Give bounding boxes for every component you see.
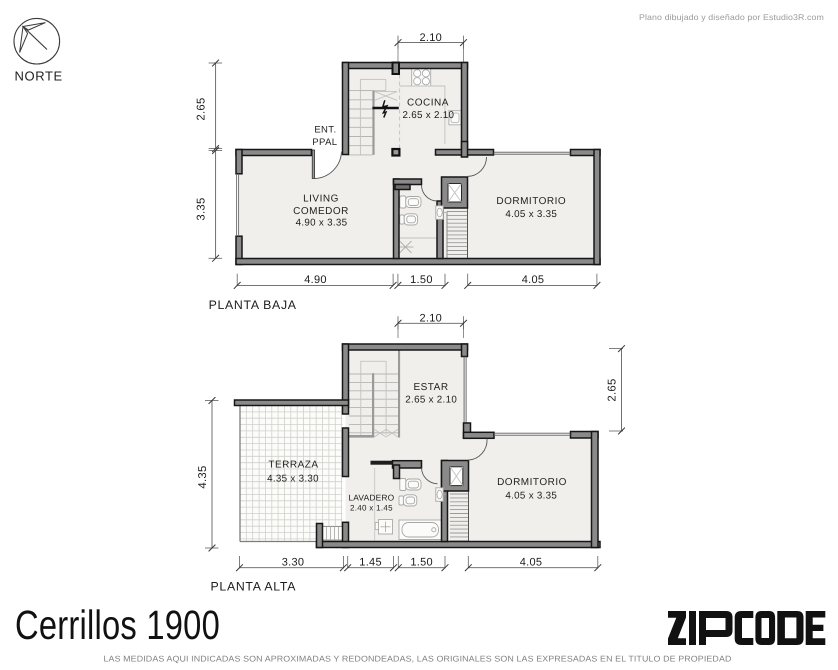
- svg-text:COCINA: COCINA: [407, 98, 449, 109]
- svg-text:3.35: 3.35: [196, 197, 208, 220]
- svg-text:4.05: 4.05: [520, 557, 543, 569]
- svg-text:2.65: 2.65: [607, 378, 619, 401]
- svg-text:4.90 x 3.35: 4.90 x 3.35: [296, 218, 348, 229]
- svg-text:3.30: 3.30: [282, 557, 305, 569]
- svg-text:LAS MEDIDAS AQUI INDICADAS SON: LAS MEDIDAS AQUI INDICADAS SON APROXIMAD…: [104, 653, 732, 663]
- svg-text:TERRAZA: TERRAZA: [268, 460, 318, 471]
- svg-text:ENT.: ENT.: [314, 125, 336, 136]
- svg-text:4.35: 4.35: [197, 465, 209, 488]
- svg-text:4.05: 4.05: [522, 274, 545, 286]
- svg-text:COMEDOR: COMEDOR: [293, 206, 349, 217]
- svg-text:LIVING: LIVING: [303, 194, 339, 205]
- svg-text:1.50: 1.50: [410, 274, 433, 286]
- svg-text:NORTE: NORTE: [15, 68, 63, 83]
- svg-text:PLANTA ALTA: PLANTA ALTA: [211, 580, 297, 594]
- svg-text:1.45: 1.45: [359, 557, 382, 569]
- svg-text:LAVADERO: LAVADERO: [348, 493, 394, 503]
- svg-text:2.10: 2.10: [419, 313, 442, 325]
- svg-text:DORMITORIO: DORMITORIO: [496, 196, 566, 207]
- svg-text:2.65: 2.65: [196, 97, 208, 120]
- svg-text:Plano dibujado y diseñado por: Plano dibujado y diseñado por Estudio3R.…: [639, 13, 824, 22]
- svg-text:DORMITORIO: DORMITORIO: [497, 477, 567, 488]
- svg-text:4.35 x 3.30: 4.35 x 3.30: [267, 474, 319, 485]
- svg-text:2.40 x 1.45: 2.40 x 1.45: [350, 504, 393, 513]
- svg-text:4.05 x 3.35: 4.05 x 3.35: [505, 209, 557, 220]
- svg-text:1.50: 1.50: [410, 557, 433, 569]
- svg-text:Cerrillos 1900: Cerrillos 1900: [15, 602, 220, 648]
- svg-text:2.10: 2.10: [419, 32, 442, 44]
- svg-text:2.65 x 2.10: 2.65 x 2.10: [403, 110, 455, 121]
- svg-text:4.05 x 3.35: 4.05 x 3.35: [505, 491, 557, 502]
- svg-text:ESTAR: ESTAR: [413, 382, 448, 393]
- svg-text:4.90: 4.90: [304, 274, 327, 286]
- svg-text:2.65 x 2.10: 2.65 x 2.10: [405, 395, 457, 406]
- svg-text:PLANTA BAJA: PLANTA BAJA: [209, 298, 297, 312]
- svg-text:PPAL: PPAL: [312, 137, 337, 148]
